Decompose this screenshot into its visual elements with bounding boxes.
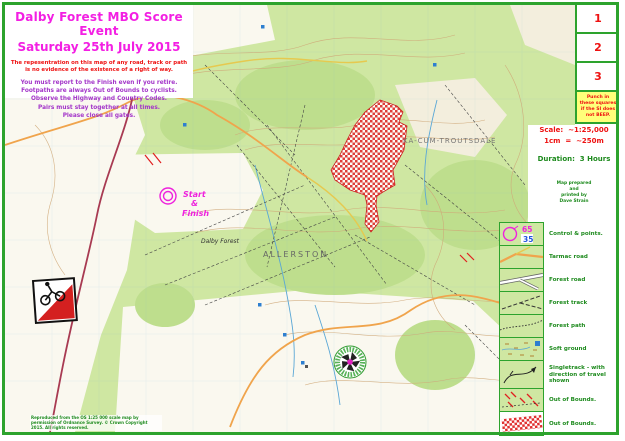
legend-swatch-control-icon: 65 35: [499, 222, 544, 246]
legend-swatch-forest-path-icon: [499, 315, 544, 338]
legend-label: Forest road: [544, 277, 585, 284]
svg-text:35: 35: [523, 235, 533, 244]
event-title: Dalby Forest MBO Score Event: [5, 10, 193, 38]
legend-label: Tarmac road: [544, 254, 588, 261]
svg-text:Start: Start: [183, 190, 207, 199]
legend-row-oob-hatch: Out of Bounds.: [499, 412, 620, 436]
instruction-line: Please close all gates.: [5, 112, 193, 120]
punch-note: Punch in these squares if the SI does no…: [575, 92, 619, 124]
map-label-dalby-forest: Dalby Forest: [201, 238, 240, 245]
scale-text-1: Scale: ~1:25,000: [528, 125, 620, 136]
map-label-allerston: ALLERSTON: [263, 250, 328, 259]
legend-swatch-soft-ground-icon: [499, 338, 544, 361]
duration-text: Duration: 3 Hours: [528, 155, 620, 163]
instruction-line: You must report to the Finish even if yo…: [5, 79, 193, 87]
svg-text:&: &: [191, 199, 198, 208]
legend-label: Out of Bounds.: [544, 421, 596, 428]
legend-swatch-tarmac-icon: [499, 246, 544, 269]
legend-row-tarmac: Tarmac road: [499, 246, 620, 269]
legend-label: Control & points.: [544, 231, 603, 238]
map-credit: Map prepared and printed by Dave Strain: [528, 181, 620, 205]
legend-swatch-oob-marks-icon: [499, 389, 544, 412]
map-label-troutsdale: KA-CUM-TROUTSDALE: [403, 137, 496, 145]
compass-rose-icon: [334, 346, 366, 378]
legend-row-control: 65 35 Control & points.: [499, 222, 620, 246]
event-date: Saturday 25th July 2015: [5, 40, 193, 54]
instruction-line: Pairs must stay together at all times.: [5, 104, 193, 112]
svg-text:65: 65: [522, 225, 532, 234]
legend-row-forest-track: Forest track: [499, 292, 620, 315]
legend-row-forest-path: Forest path: [499, 315, 620, 338]
legend-label: Singletrack - with direction of travel s…: [544, 365, 620, 386]
scale-text-2: 1cm = ~250m: [528, 136, 620, 147]
legend-label: Soft ground: [544, 346, 587, 353]
legend-row-forest-road: Forest road: [499, 269, 620, 292]
legend-row-soft-ground: Soft ground: [499, 338, 620, 361]
instructions-text: You must report to the Finish even if yo…: [5, 79, 193, 121]
punch-box-3: 3: [575, 63, 619, 92]
instruction-line: Observe the Highway and Country Codes.: [5, 95, 193, 103]
legend-swatch-forest-track-icon: [499, 292, 544, 315]
legend-row-oob-marks: Out of Bounds.: [499, 389, 620, 412]
punch-box-1: 1: [575, 5, 619, 34]
mbo-logo-icon: [33, 278, 77, 323]
legend-panel: 65 35 Control & points. Tarmac road Fore…: [499, 222, 620, 432]
os-copyright: Reproduced from the OS 1:25 000 scale ma…: [30, 415, 162, 431]
legend-label: Forest track: [544, 300, 587, 307]
disclaimer-line2: is no evidence of the existence of a rig…: [5, 67, 193, 74]
legend-swatch-singletrack-icon: [499, 361, 544, 389]
legend-swatch-forest-road-icon: [499, 269, 544, 292]
credit-line: Dave Strain: [528, 199, 620, 205]
title-panel: Dalby Forest MBO Score Event Saturday 25…: [5, 5, 193, 98]
legend-swatch-oob-hatch-icon: [499, 412, 544, 436]
punch-column: 1 2 3 Punch in these squares if the SI d…: [575, 5, 619, 124]
legend-row-singletrack: Singletrack - with direction of travel s…: [499, 361, 620, 389]
legend-label: Out of Bounds.: [544, 397, 596, 404]
legend-label: Forest path: [544, 323, 585, 330]
disclaimer-text: The repesentration on this map of any ro…: [5, 60, 193, 74]
info-panel: Scale: ~1:25,000 1cm = ~250m Duration: 3…: [528, 125, 620, 225]
punch-box-2: 2: [575, 34, 619, 63]
instruction-line: Footpaths are always Out of Bounds to cy…: [5, 87, 193, 95]
disclaimer-line1: The repesentration on this map of any ro…: [5, 60, 193, 67]
svg-text:Finish: Finish: [182, 209, 209, 218]
